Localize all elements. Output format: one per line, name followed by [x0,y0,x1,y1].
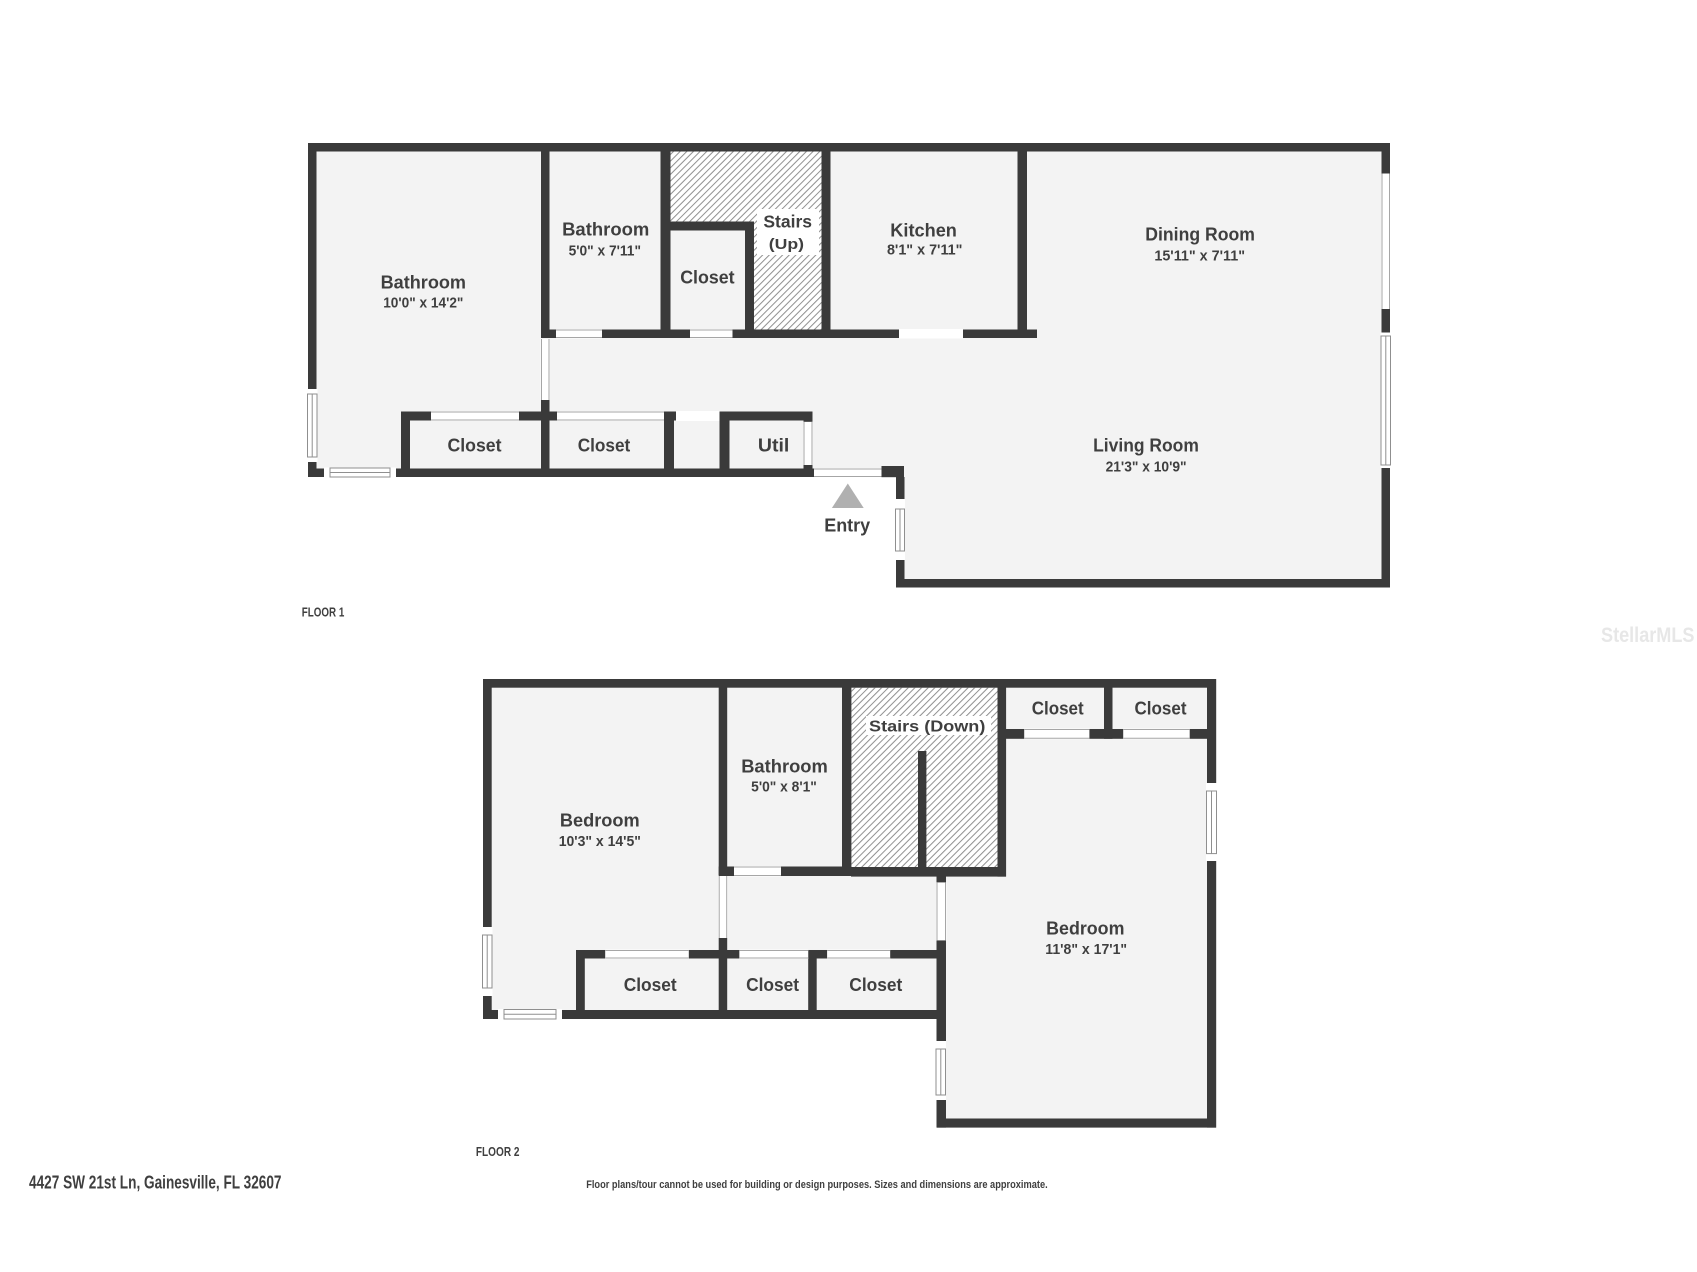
svg-text:Bathroom: Bathroom [381,271,466,292]
svg-text:Living Room: Living Room [1093,434,1199,455]
svg-text:5'0" x 8'1": 5'0" x 8'1" [751,780,817,796]
svg-text:Closet: Closet [578,435,631,456]
svg-text:21'3" x 10'9": 21'3" x 10'9" [1106,460,1187,476]
svg-text:Bathroom: Bathroom [741,755,828,776]
svg-text:10'0" x 14'2": 10'0" x 14'2" [383,296,463,312]
svg-text:Closet: Closet [624,974,677,995]
svg-text:Stairs: Stairs [763,212,812,232]
svg-text:Closet: Closet [1032,698,1084,719]
svg-text:Util: Util [758,435,789,456]
svg-text:Closet: Closet [448,435,502,456]
svg-text:4427 SW 21st Ln, Gainesville,: 4427 SW 21st Ln, Gainesville, FL 32607 [29,1173,282,1193]
svg-text:11'8" x 17'1": 11'8" x 17'1" [1045,942,1127,958]
svg-text:Stairs (Down): Stairs (Down) [869,718,985,735]
svg-text:Bedroom: Bedroom [560,810,640,831]
svg-text:Dining Room: Dining Room [1145,223,1255,244]
svg-text:8'1" x 7'11": 8'1" x 7'11" [887,243,963,259]
svg-text:FLOOR 2: FLOOR 2 [476,1145,520,1159]
svg-text:Entry: Entry [824,515,870,535]
svg-text:Closet: Closet [746,974,799,995]
svg-text:FLOOR 1: FLOOR 1 [302,606,345,620]
svg-text:Closet: Closet [1135,698,1187,719]
svg-text:(Up): (Up) [769,236,804,253]
svg-text:10'3" x 14'5": 10'3" x 14'5" [559,834,641,850]
svg-text:StellarMLS: StellarMLS [1601,624,1695,647]
svg-text:15'11" x 7'11": 15'11" x 7'11" [1154,249,1245,265]
svg-text:Kitchen: Kitchen [890,219,957,240]
svg-text:Closet: Closet [849,974,902,995]
svg-text:Bedroom: Bedroom [1046,918,1124,939]
svg-text:Closet: Closet [680,266,734,287]
svg-text:5'0" x 7'11": 5'0" x 7'11" [569,244,641,260]
svg-text:Bathroom: Bathroom [562,219,649,240]
svg-text:Floor plans/tour cannot be use: Floor plans/tour cannot be used for buil… [586,1179,1047,1191]
